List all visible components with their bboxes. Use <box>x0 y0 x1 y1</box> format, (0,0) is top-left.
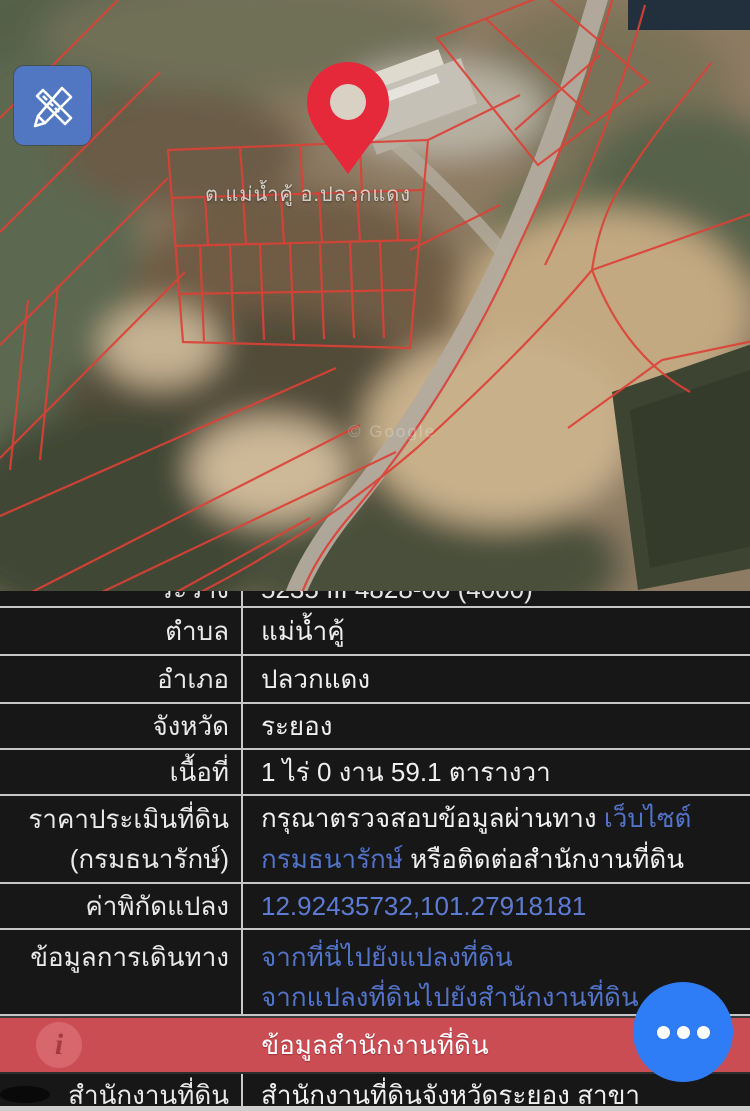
route-here-to-parcel-link[interactable]: จากที่นี่ไปยังแปลงที่ดิน <box>261 942 513 972</box>
landsmaps-screen: ต.แม่น้ำคู้ อ.ปลวกแดง © Google ระวาง 523… <box>0 0 750 1111</box>
coordinates-label: ค่าพิกัดแปลง <box>85 886 229 927</box>
map-pin-icon[interactable] <box>305 60 391 176</box>
travel-label: ข้อมูลการเดินทาง <box>30 937 229 978</box>
area-value: 1 ไร่ 0 งาน 59.1 ตารางวา <box>261 752 740 793</box>
area-label: เนื้อที่ <box>170 752 229 793</box>
table-row-province: จังหวัด ระยอง <box>0 704 750 750</box>
table-row-map-sheet: ระวาง 5235 III 4828-00 (4000) <box>0 591 750 608</box>
table-row-travel-info: ข้อมูลการเดินทาง จากที่นี่ไปยังแปลงที่ดิ… <box>0 930 750 1016</box>
table-row-subdistrict: ตำบล แม่น้ำคู้ <box>0 608 750 656</box>
table-row-coordinates: ค่าพิกัดแปลง 12.92435732,101.27918181 <box>0 884 750 930</box>
more-dots-icon <box>657 1026 670 1039</box>
province-label: จังหวัด <box>152 706 229 747</box>
map-watermark: © Google <box>348 422 436 442</box>
district-value: ปลวกแดง <box>261 659 740 700</box>
subdistrict-label: ตำบล <box>165 611 229 652</box>
province-value: ระยอง <box>261 706 740 747</box>
pencil-ruler-icon <box>28 81 78 131</box>
satellite-map[interactable]: ต.แม่น้ำคู้ อ.ปลวกแดง © Google <box>0 0 750 593</box>
land-office-header-label: ข้อมูลสำนักงานที่ดิน <box>261 1025 488 1066</box>
price-label-line2: (กรมธนารักษ์) <box>70 839 229 879</box>
dark-blob <box>0 1086 50 1103</box>
treasury-website-link-cont[interactable]: กรมธนารักษ์ <box>261 844 403 874</box>
more-options-fab[interactable] <box>633 982 733 1082</box>
info-icon[interactable]: i <box>36 1022 82 1068</box>
price-label-line1: ราคาประเมินที่ดิน <box>28 799 229 839</box>
price-note-text2: หรือติดต่อสำนักงานที่ดิน <box>403 844 684 874</box>
price-note-text: กรุณาตรวจสอบข้อมูลผ่านทาง <box>261 803 604 833</box>
pond-top-right <box>628 0 750 30</box>
bottom-divider <box>0 1106 750 1111</box>
table-row-district: อำเภอ ปลวกแดง <box>0 656 750 704</box>
map-place-label: ต.แม่น้ำคู้ อ.ปลวกแดง <box>205 178 525 210</box>
table-row-area: เนื้อที่ 1 ไร่ 0 งาน 59.1 ตารางวา <box>0 750 750 796</box>
table-row-appraisal-price: ราคาประเมินที่ดิน (กรมธนารักษ์) กรุณาตรว… <box>0 796 750 884</box>
map-sheet-value: 5235 III 4828-00 (4000) <box>261 591 740 604</box>
treasury-website-link[interactable]: เว็บไซต์ <box>604 803 692 833</box>
subdistrict-value: แม่น้ำคู้ <box>261 611 740 652</box>
district-label: อำเภอ <box>157 659 229 700</box>
map-sheet-label: ระวาง <box>159 591 229 604</box>
edit-parcel-button[interactable] <box>14 66 91 145</box>
coordinates-link[interactable]: 12.92435732,101.27918181 <box>261 891 740 922</box>
route-parcel-to-office-link[interactable]: จากแปลงที่ดินไปยังสำนักงานที่ดิน <box>261 982 639 1012</box>
